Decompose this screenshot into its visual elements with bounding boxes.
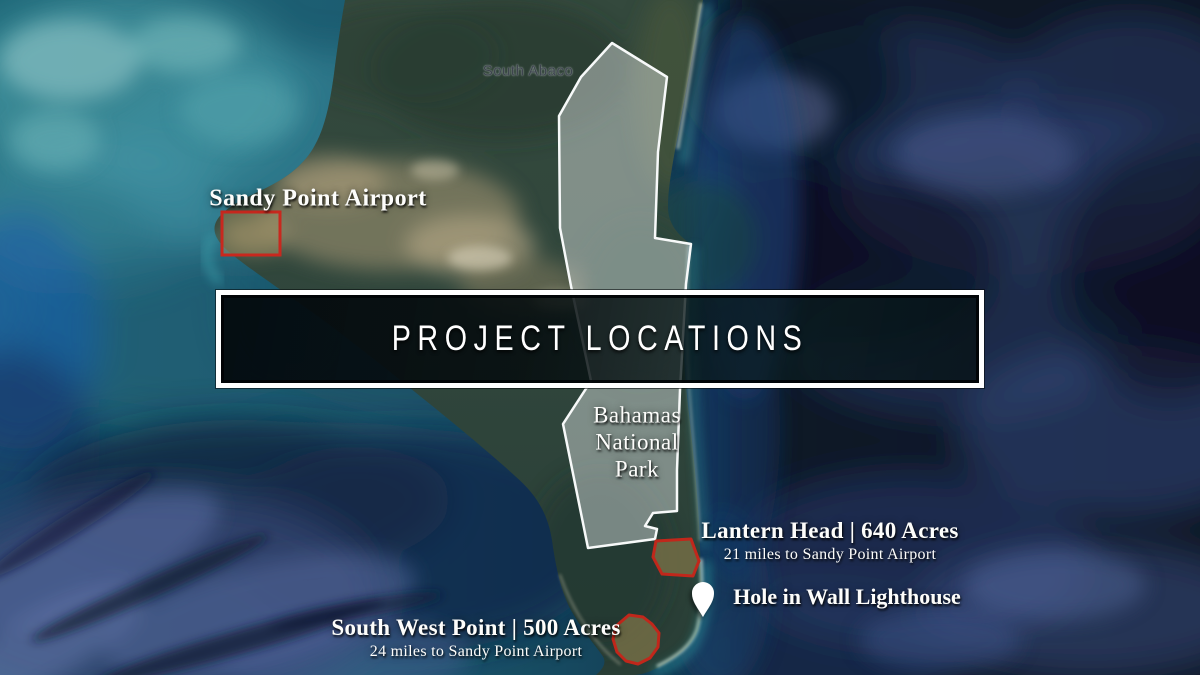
south-west-point-parcel (613, 615, 659, 664)
airport-boundary (222, 212, 280, 255)
title-box: PROJECT LOCATIONS (216, 290, 984, 388)
slide: South Abaco Sandy Point Airport PROJECT … (0, 0, 1200, 675)
lantern-head-parcel (653, 539, 699, 576)
slide-title: PROJECT LOCATIONS (392, 319, 809, 359)
